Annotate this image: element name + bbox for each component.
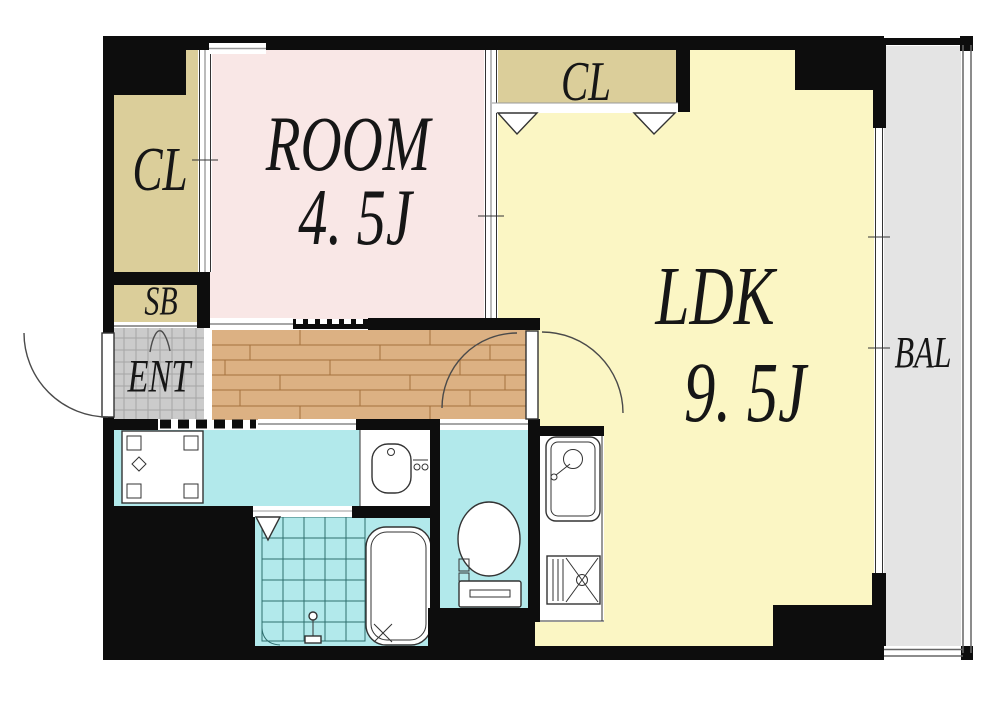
label-shoe-box: SB <box>144 281 177 322</box>
bedroom-window <box>209 43 266 54</box>
entrance-door-arc <box>24 333 108 417</box>
label-bedroom-size: 4. 5J <box>298 178 412 258</box>
entrance-door <box>24 333 114 417</box>
label-ldk-size: 9. 5J <box>684 349 806 435</box>
toilet <box>458 502 521 607</box>
label-entrance: ENT <box>128 354 191 401</box>
label-closet-ldk: CL <box>561 54 611 110</box>
washing-machine-pan <box>122 431 203 503</box>
label-bedroom: ROOM <box>266 105 430 183</box>
label-balcony: BAL <box>894 331 951 375</box>
stove <box>547 556 600 604</box>
kitchen-sink <box>546 437 600 521</box>
label-closet-left: CL <box>132 139 187 201</box>
floor-plan: CL ROOM 4. 5J CL LDK 9. 5J SB ENT BAL <box>0 0 1008 708</box>
label-ldk: LDK <box>655 255 774 339</box>
bathtub <box>366 527 431 645</box>
